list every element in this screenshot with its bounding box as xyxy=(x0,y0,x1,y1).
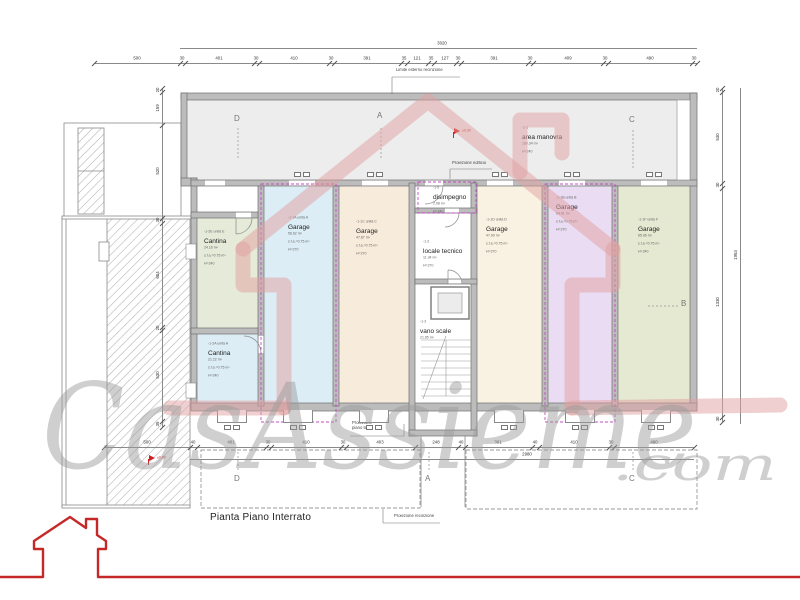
watermark-suffix: .com xyxy=(612,437,777,491)
watermark-text: CasAssieme xyxy=(42,358,697,496)
agency-house-logo xyxy=(0,517,800,577)
floor-plan-canvas: -1-1area manovra180.34 m²H=240-1-2E unit… xyxy=(0,0,800,600)
watermark-layer: CasAssieme .com xyxy=(0,0,800,600)
